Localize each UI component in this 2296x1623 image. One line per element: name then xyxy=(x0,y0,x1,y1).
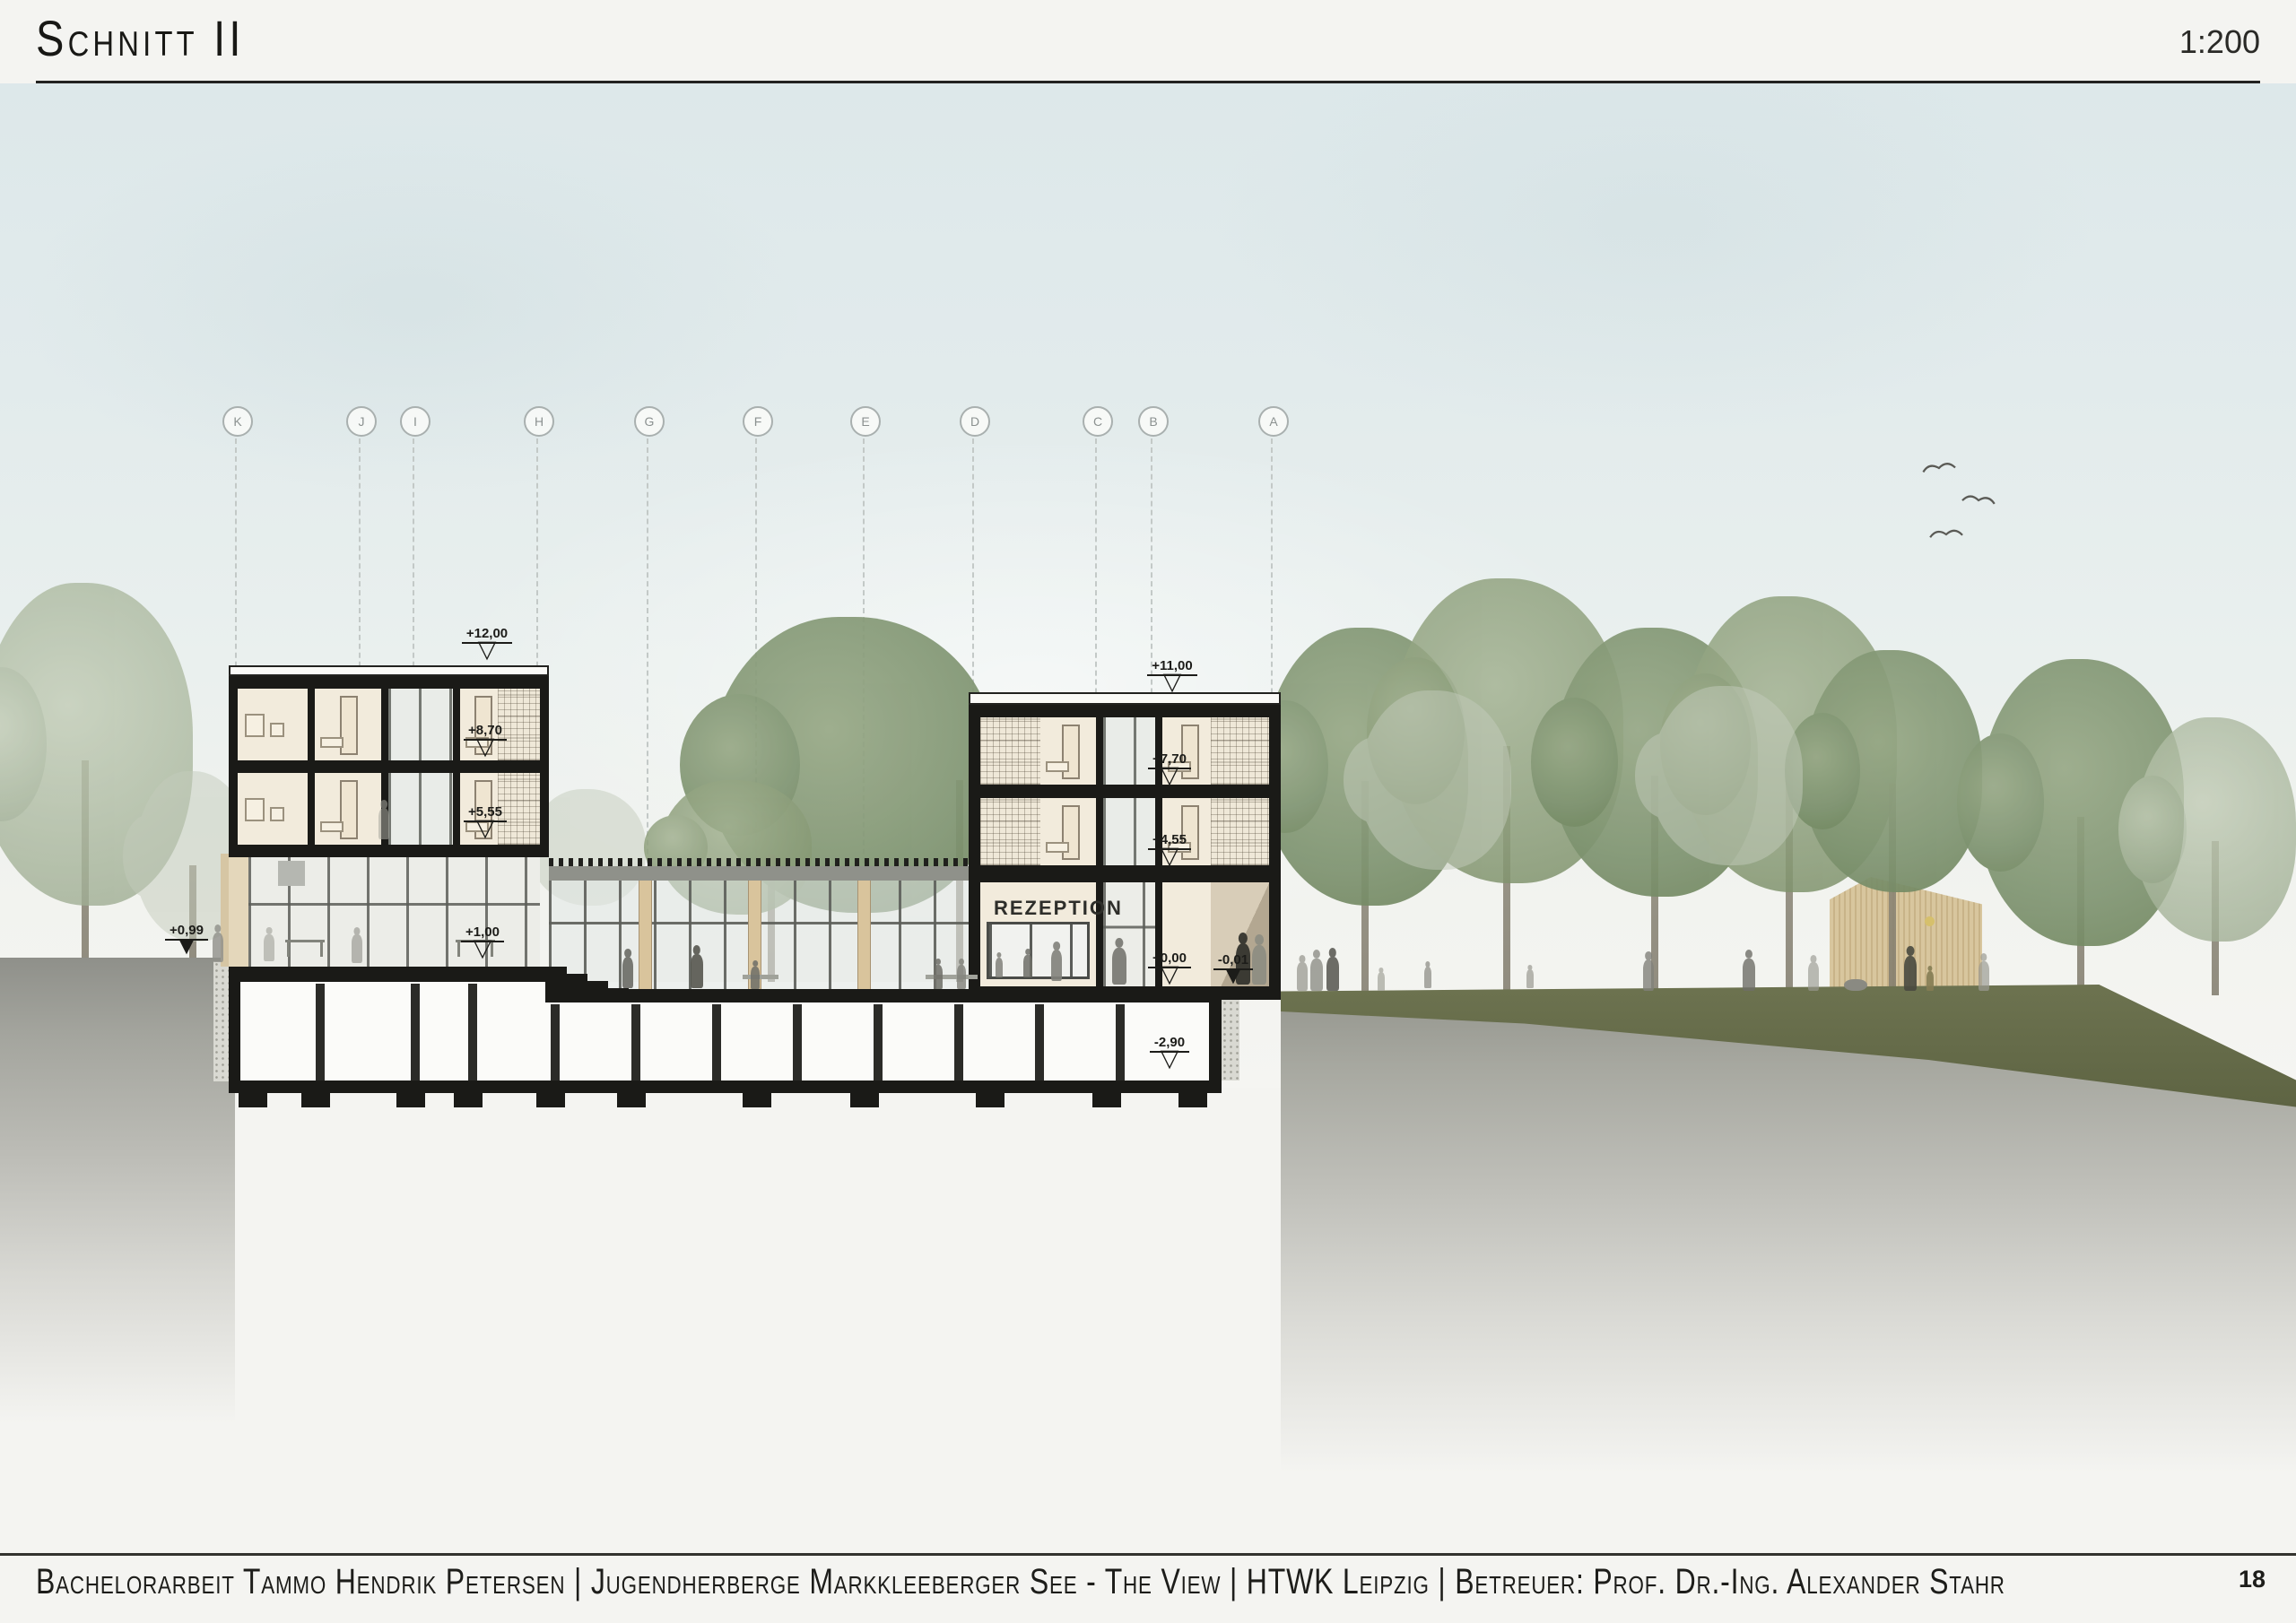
floor-slab xyxy=(969,865,1281,882)
basement-column xyxy=(316,984,325,1081)
basement-column xyxy=(631,1004,640,1081)
person-silhouette xyxy=(751,960,761,989)
person-silhouette xyxy=(622,949,635,988)
furniture xyxy=(320,821,344,832)
person-silhouette xyxy=(1326,948,1340,991)
wall-column xyxy=(308,689,315,760)
person-silhouette xyxy=(351,927,363,963)
grid-bubble-K: K xyxy=(222,406,253,437)
basement-column xyxy=(1035,1004,1044,1081)
stair-step xyxy=(607,988,629,1002)
person-silhouette xyxy=(1050,942,1064,981)
grid-bubble-H: H xyxy=(524,406,554,437)
grid-bubble-D: D xyxy=(960,406,990,437)
guest-room xyxy=(315,689,381,760)
grid-bubble-G: G xyxy=(634,406,665,437)
person-silhouette xyxy=(1807,955,1820,991)
level-marker: +4,55▽ xyxy=(1126,833,1213,864)
basement-column xyxy=(712,1004,721,1081)
tree-crown xyxy=(1359,690,1511,870)
wall-column xyxy=(969,882,980,986)
wardrobe xyxy=(245,714,265,737)
person-silhouette xyxy=(933,959,944,989)
wall-strip xyxy=(229,857,248,967)
level-marker: +0,99▼ xyxy=(143,924,230,955)
roof-slab xyxy=(229,676,549,689)
upper-floor-2 xyxy=(969,717,1281,785)
page-title: Schnitt II xyxy=(36,9,245,67)
timber-column xyxy=(639,881,652,989)
person-silhouette xyxy=(690,945,704,988)
wall-column xyxy=(1269,798,1281,865)
guest-room xyxy=(1040,798,1096,865)
person-silhouette xyxy=(1642,951,1656,991)
grid-bubble-I: I xyxy=(400,406,430,437)
person-silhouette xyxy=(1742,950,1756,991)
basement-column xyxy=(954,1004,963,1081)
foundation-pad xyxy=(396,1093,425,1107)
wall-column xyxy=(969,798,980,865)
wall-column xyxy=(1096,717,1103,785)
foundation-pad xyxy=(454,1093,483,1107)
foundation-pad xyxy=(239,1093,267,1107)
basement-column xyxy=(874,1004,883,1081)
guest-room xyxy=(1040,717,1096,785)
person-silhouette xyxy=(1926,966,1935,991)
person-silhouette xyxy=(1377,968,1386,991)
level-marker: -0,01▼ xyxy=(1190,953,1276,985)
basement-column xyxy=(468,984,477,1081)
bathroom-pod-section xyxy=(1211,717,1269,785)
bench xyxy=(743,975,778,979)
duct-box xyxy=(278,861,305,886)
scale-label: 1:200 xyxy=(2179,23,2260,61)
tree-crown xyxy=(2135,717,2296,942)
floor-slab xyxy=(229,760,549,773)
bird-icon xyxy=(1927,525,1964,546)
ball xyxy=(1925,916,1935,926)
footer-credit: Bachelorarbeit Tammo Hendrik Petersen | … xyxy=(36,1562,2005,1602)
wall-column xyxy=(229,773,238,845)
pergola-dentils xyxy=(549,858,969,866)
person-silhouette xyxy=(1309,950,1324,991)
level-marker: +12,00▽ xyxy=(444,627,530,658)
furniture xyxy=(1046,842,1069,853)
wall-column xyxy=(381,689,388,760)
grid-bubble-F: F xyxy=(743,406,773,437)
guest-room xyxy=(315,773,381,845)
foundation-pad xyxy=(617,1093,646,1107)
timber-column xyxy=(857,881,871,989)
level-marker: +8,70▽ xyxy=(442,724,528,755)
foundation-pad xyxy=(976,1093,1004,1107)
ground-slab xyxy=(229,967,549,982)
person-silhouette xyxy=(264,927,275,961)
stair-step xyxy=(566,974,587,1002)
tree xyxy=(1359,690,1511,870)
roof-parapet xyxy=(969,692,1281,705)
tree-crown xyxy=(1650,686,1803,865)
furniture xyxy=(270,723,284,737)
foundation-pad xyxy=(1092,1093,1121,1107)
wall-column xyxy=(1269,717,1281,785)
terrain-left xyxy=(0,958,235,1424)
furniture xyxy=(1046,761,1069,772)
page-number: 18 xyxy=(2239,1566,2266,1593)
tree-crown xyxy=(1803,650,1982,892)
wall-column xyxy=(540,773,549,845)
tree xyxy=(2135,717,2296,995)
foundation-wall-right xyxy=(1222,1000,1239,1081)
furniture xyxy=(320,737,344,748)
person-silhouette xyxy=(1111,938,1127,985)
bathroom-pod-section xyxy=(980,717,1040,785)
foundation-pad xyxy=(1178,1093,1207,1107)
table xyxy=(285,940,325,959)
person-silhouette xyxy=(1023,949,1033,977)
basement-column xyxy=(793,1004,802,1081)
basement-column xyxy=(1116,1004,1125,1081)
bathroom-pod-section xyxy=(1211,798,1269,865)
basement-column xyxy=(411,984,420,1081)
dog-silhouette xyxy=(1844,979,1867,991)
person-silhouette xyxy=(1978,953,1990,991)
basement-floor-slab xyxy=(229,1081,1222,1093)
roof-parapet xyxy=(229,665,549,676)
person-silhouette xyxy=(956,959,967,989)
level-marker: -2,90▽ xyxy=(1126,1036,1213,1067)
level-marker: +5,55▽ xyxy=(442,805,528,837)
person-silhouette xyxy=(378,800,391,839)
level-marker: +11,00▽ xyxy=(1129,659,1215,690)
level-marker: +7,70▽ xyxy=(1126,752,1213,784)
tree xyxy=(1650,686,1803,865)
level-marker: +1,00▽ xyxy=(439,925,526,957)
upper-floor-1 xyxy=(969,798,1281,865)
guest-room xyxy=(238,689,308,760)
grid-bubble-E: E xyxy=(850,406,881,437)
person-silhouette xyxy=(1296,955,1309,991)
roof-slab xyxy=(969,705,1281,717)
foundation-pad xyxy=(743,1093,771,1107)
bird-icon xyxy=(1960,490,1997,512)
wall-column xyxy=(229,689,238,760)
stair-step xyxy=(587,981,608,1002)
pergola-fascia xyxy=(549,866,969,881)
person-silhouette xyxy=(1903,946,1918,991)
person-silhouette xyxy=(995,952,1004,977)
drawing-sheet: Schnitt II 1:200 KJIHGFEDCBA REZEPTION +… xyxy=(0,0,2296,1623)
floor-slab xyxy=(229,845,549,857)
reception-label: REZEPTION xyxy=(994,897,1123,920)
stair-step xyxy=(545,967,567,1002)
foundation-pad xyxy=(301,1093,330,1107)
basement-wall xyxy=(229,982,240,1081)
wall-column xyxy=(1096,798,1103,865)
grid-bubble-A: A xyxy=(1258,406,1289,437)
floor-slab xyxy=(969,785,1281,798)
foundation-pad xyxy=(536,1093,565,1107)
basement-column xyxy=(551,1004,560,1081)
bathroom-pod-section xyxy=(980,798,1040,865)
guest-room xyxy=(238,773,308,845)
footer-rule xyxy=(0,1553,2296,1556)
furniture xyxy=(270,807,284,821)
person-silhouette xyxy=(1423,961,1432,988)
tree xyxy=(1803,650,1982,994)
wall-column xyxy=(540,689,549,760)
wall-column xyxy=(308,773,315,845)
person-silhouette xyxy=(1526,965,1535,988)
grid-bubble-J: J xyxy=(346,406,377,437)
grid-bubble-B: B xyxy=(1138,406,1169,437)
grid-bubble-C: C xyxy=(1083,406,1113,437)
foundation-pad xyxy=(850,1093,879,1107)
wardrobe xyxy=(245,798,265,821)
wall-column xyxy=(969,717,980,785)
